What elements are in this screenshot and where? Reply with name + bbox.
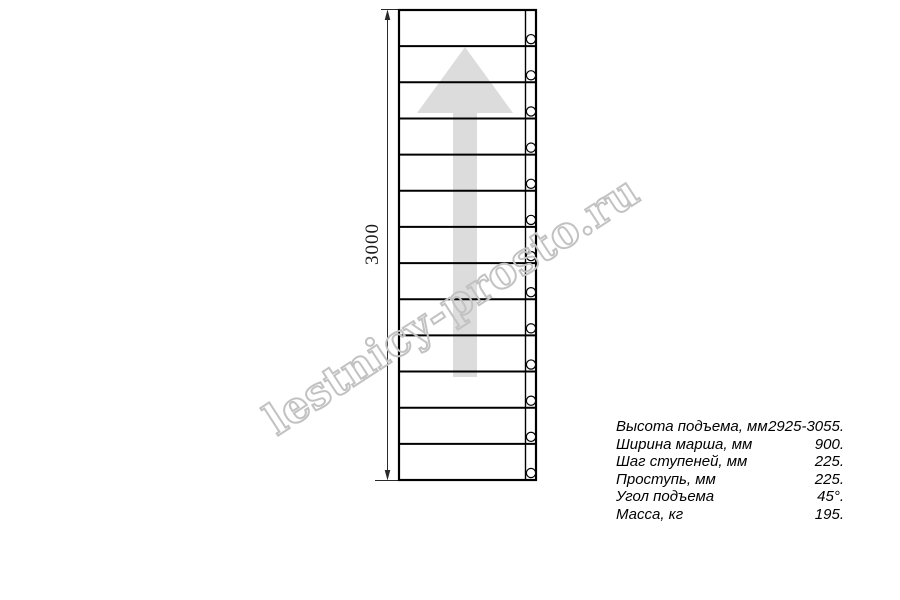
mounting-hole-icon	[526, 360, 535, 369]
spec-label: Угол подъема	[616, 488, 714, 506]
spec-value: 225.	[815, 471, 844, 489]
spec-row-mass: Масса, кг 195.	[616, 506, 844, 524]
spec-row-width: Ширина марша, мм 900.	[616, 436, 844, 454]
mounting-hole-icon	[526, 324, 535, 333]
spec-label: Проступь, мм	[616, 471, 716, 489]
mounting-hole-icon	[526, 215, 535, 224]
mounting-hole-icon	[526, 396, 535, 405]
mounting-hole-icon	[526, 71, 535, 80]
spec-value: 225.	[815, 453, 844, 471]
dimension-label: 3000	[362, 223, 384, 265]
spec-value: 45°.	[817, 488, 844, 506]
direction-up-arrow-icon	[417, 47, 513, 377]
spec-row-tread-depth: Проступь, мм 225.	[616, 471, 844, 489]
spec-value: 195.	[815, 506, 844, 524]
spec-label: Шаг ступеней, мм	[616, 453, 747, 471]
spec-row-height: Высота подъема, мм 2925-3055.	[616, 418, 844, 436]
mounting-hole-icon	[526, 288, 535, 297]
spec-label: Высота подъема, мм	[616, 418, 768, 436]
spec-value: 2925-3055.	[768, 418, 844, 436]
mounting-hole-icon	[526, 143, 535, 152]
mounting-hole-icon	[526, 432, 535, 441]
mounting-hole-icon	[526, 179, 535, 188]
mounting-hole-icon	[526, 107, 535, 116]
spec-row-angle: Угол подъема 45°.	[616, 488, 844, 506]
spec-label: Масса, кг	[616, 506, 683, 524]
spec-row-step: Шаг ступеней, мм 225.	[616, 453, 844, 471]
dimension-arrowhead-up-icon	[385, 10, 391, 21]
dimension-arrowhead-down-icon	[385, 470, 391, 481]
spec-value: 900.	[815, 436, 844, 454]
mounting-hole-icon	[526, 251, 535, 260]
stair-drawing-page: 3000 lestnicy-prosto.ru Высота подъема, …	[0, 0, 900, 600]
specs-table: Высота подъема, мм 2925-3055. Ширина мар…	[616, 418, 844, 523]
mounting-hole-icon	[526, 35, 535, 44]
mounting-hole-icon	[526, 468, 535, 477]
spec-label: Ширина марша, мм	[616, 436, 752, 454]
mounting-holes	[526, 35, 535, 478]
